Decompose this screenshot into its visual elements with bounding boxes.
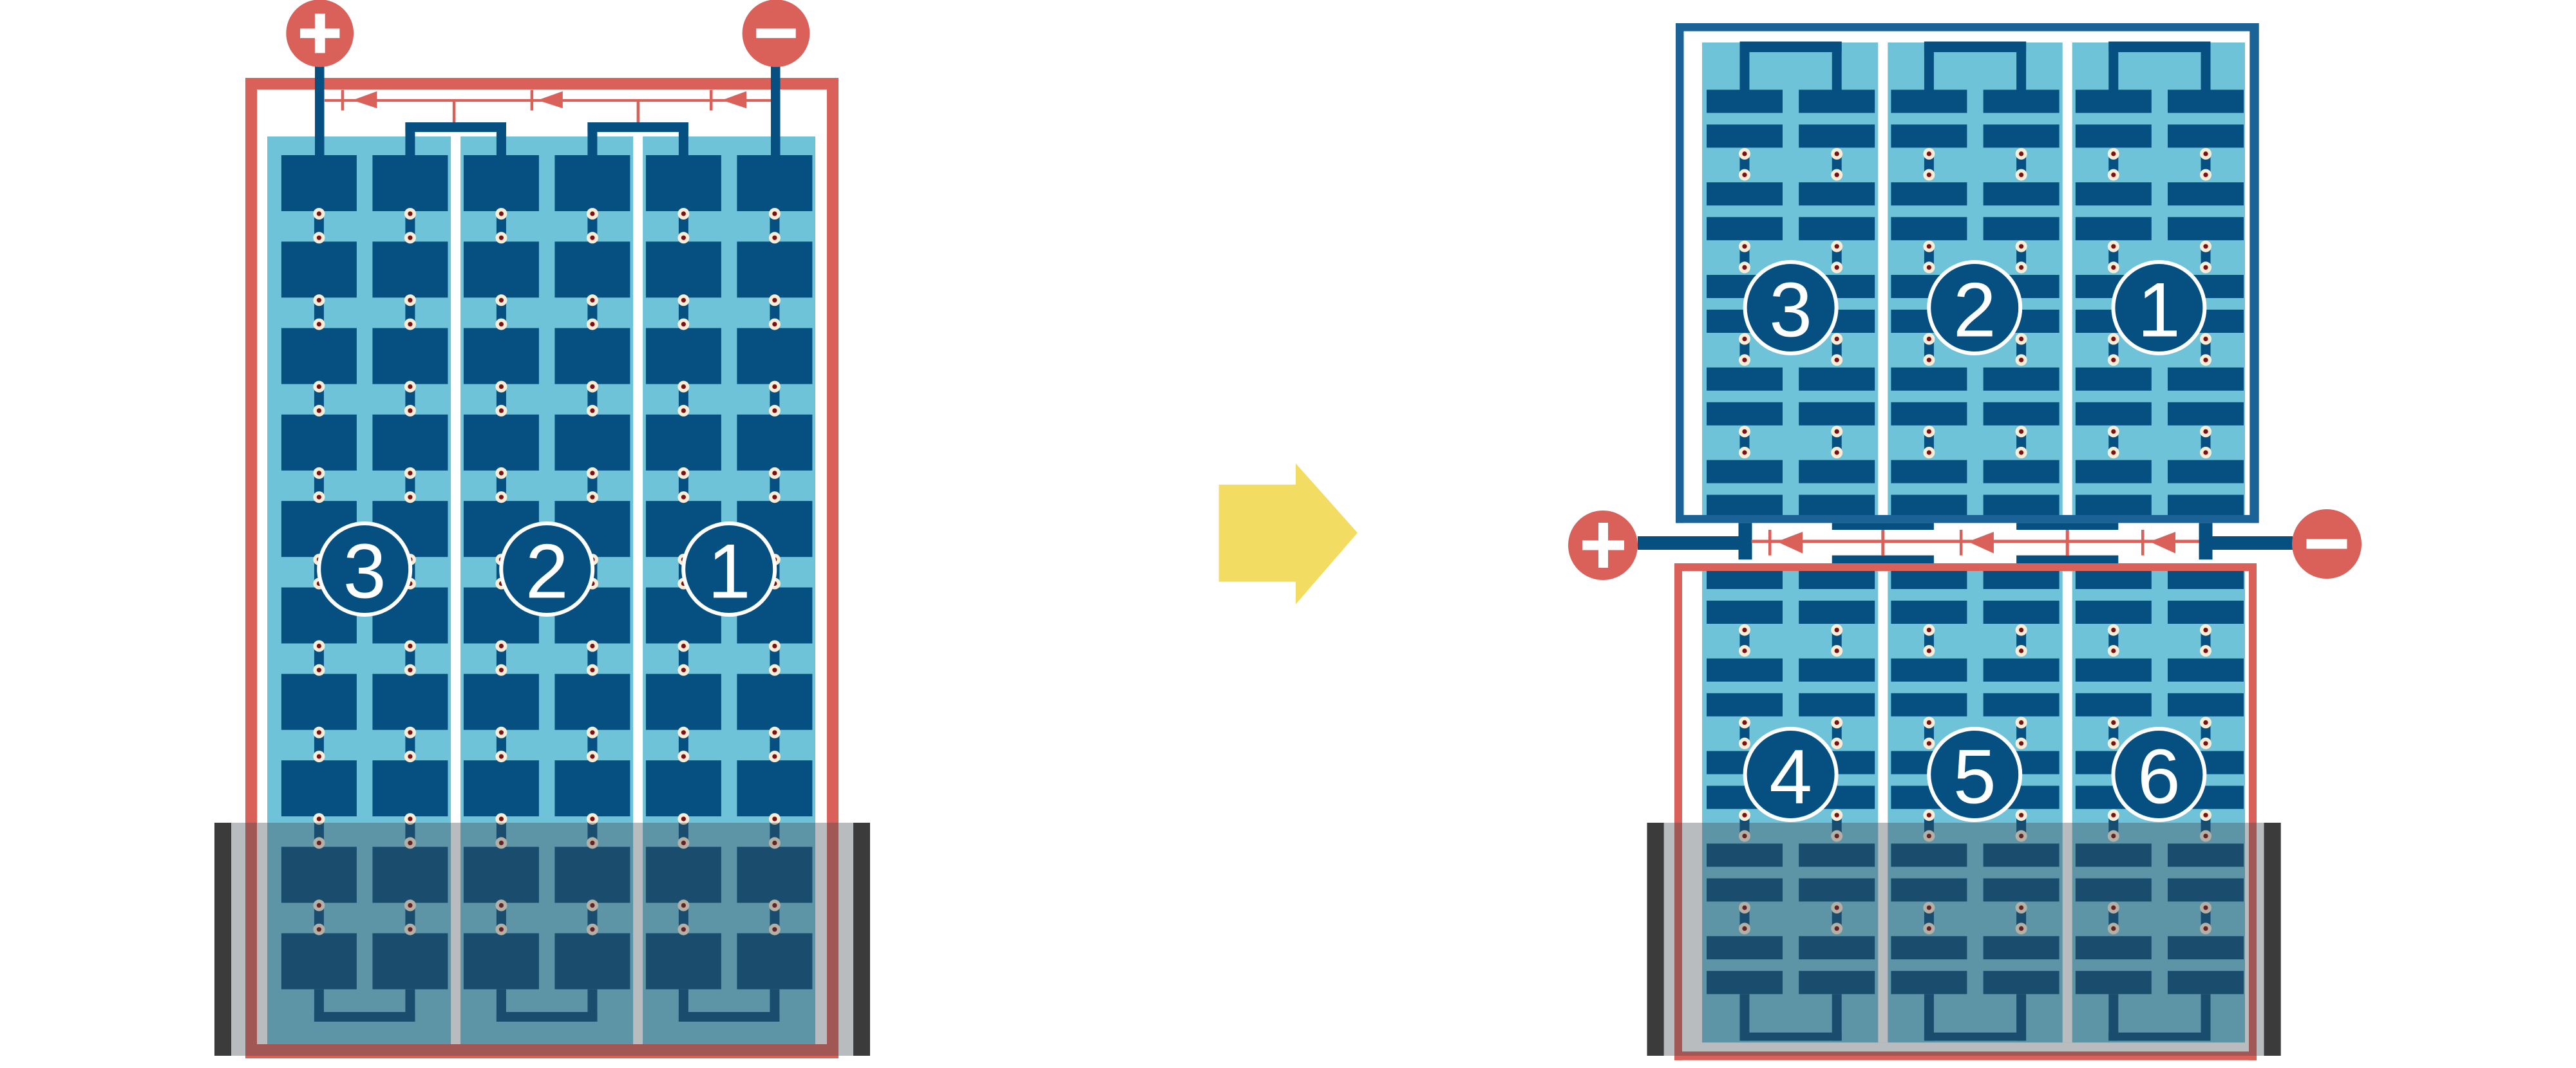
svg-text:1: 1 — [2137, 267, 2181, 353]
svg-text:2: 2 — [1953, 267, 1996, 353]
svg-text:4: 4 — [1769, 733, 1812, 820]
svg-text:6: 6 — [2137, 733, 2181, 820]
svg-text:3: 3 — [1769, 267, 1812, 353]
svg-text:2: 2 — [526, 528, 569, 614]
svg-text:5: 5 — [1953, 733, 1996, 820]
svg-text:3: 3 — [343, 528, 386, 614]
svg-text:1: 1 — [708, 528, 751, 614]
